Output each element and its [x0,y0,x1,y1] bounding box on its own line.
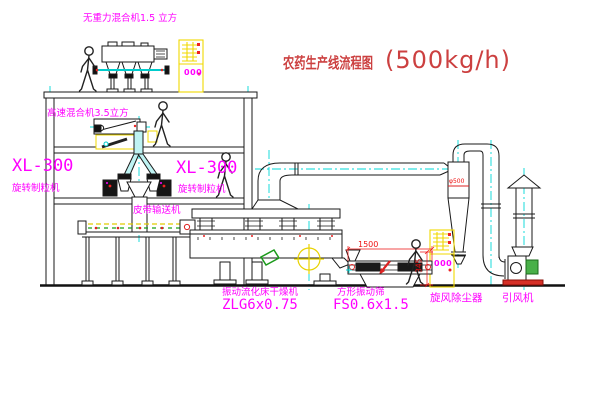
high-speed-mixer [94,119,157,149]
cabinet2-display: 000 [434,260,452,268]
dimension-cyclone-marker: φ500 [449,179,464,185]
label-cyclone: 旋风除尘器 [430,293,483,304]
cyclone-separator [448,144,505,276]
label-mid-mixer: 高速混合机3.5立方 [47,109,129,119]
label-fan: 引风机 [502,293,534,304]
label-left-granulator-model: XL-300 [12,158,73,175]
label-right-granulator-model: XL-300 [176,160,237,177]
label-left-granulator-name: 旋转制粒机 [12,184,60,194]
label-top-mixer: 无重力混合机1.5 立方 [83,14,177,24]
label-right-granulator-name: 旋转制粒机 [178,185,226,195]
control-cabinet-1 [179,40,203,92]
label-belt-conveyor: 皮带输送机 [133,206,181,216]
diagram-title: 农药生产线流程图 (500kg/h) [283,46,511,74]
label-screen-model: FS0.6x1.5 [333,298,409,312]
fluid-bed-dryer [190,209,350,285]
dimension-screen-length: 1500 [358,241,378,249]
exhaust-duct [252,163,449,209]
label-dryer-model: ZLG6x0.75 [222,298,298,312]
induced-draft-fan [503,247,543,285]
title-chinese: 农药生产线流程图 [283,52,373,73]
diagram-page: 农药生产线流程图 (500kg/h) 无重力混合机1.5 立方 高速混合机3.5… [0,0,600,403]
title-capacity: (500kg/h) [385,46,511,74]
dimension-screen-height: 345 [415,259,423,273]
cabinet1-display: 000 [184,69,202,77]
gravity-free-mixer [93,42,169,92]
